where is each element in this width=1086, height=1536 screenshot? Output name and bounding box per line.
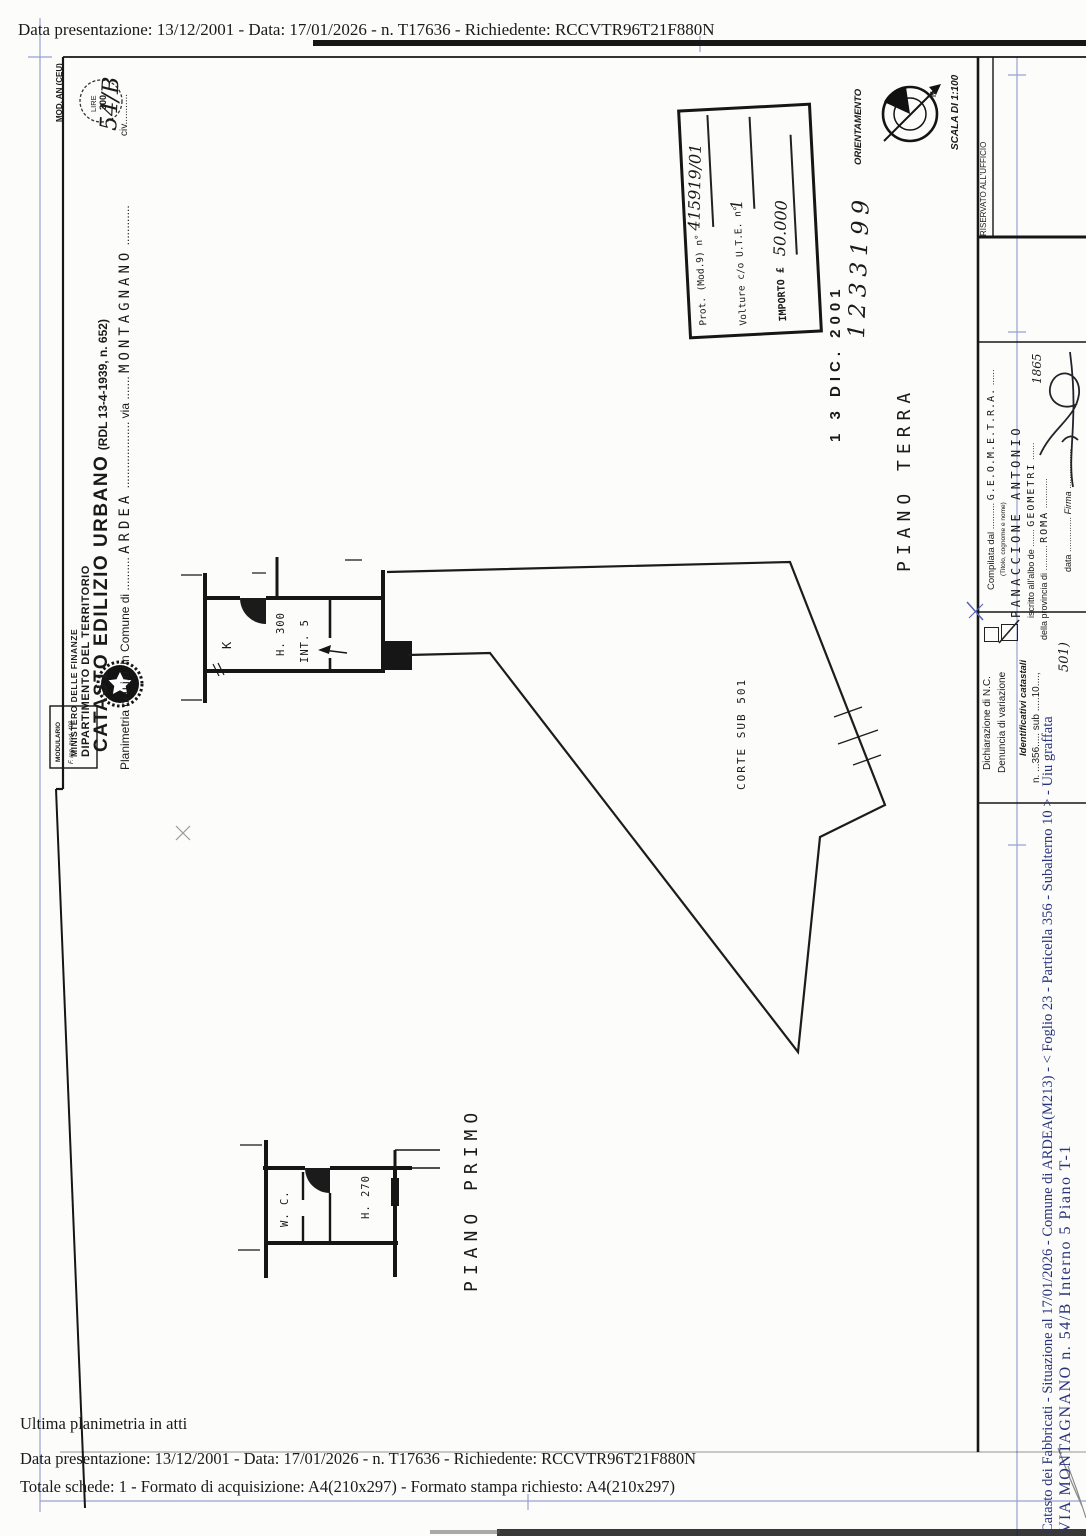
provincia-value: ROMA (1039, 511, 1050, 543)
room-h300-label: H. 300 (276, 612, 287, 656)
orientamento-label: ORIENTAMENTO (854, 89, 864, 165)
entrance-arrow-icon (318, 645, 347, 654)
stamp-rule (790, 135, 798, 255)
importo-label: IMPORTO £ (776, 267, 789, 322)
planimetria-line: Planimetria di u.i.u. in Comune di .....… (118, 205, 132, 770)
firma-label: Firma (1063, 491, 1073, 514)
provincia-label: della provincia di (1039, 573, 1049, 640)
albo-number-handwritten: 1865 (1031, 353, 1043, 384)
via-value: MONTAGNANO (117, 249, 133, 373)
stamp-rule (749, 117, 755, 209)
first-floor-door-swing (305, 1168, 330, 1193)
dots: ....... (1026, 442, 1036, 460)
date-stamp: 1 3 DIC. 2001 (828, 284, 843, 442)
volture-value-handwritten: 1 (729, 199, 746, 210)
stamp-rule (706, 115, 713, 227)
annotation-line1: Catasto dei Fabbricati - Situazione al 1… (1041, 716, 1056, 1533)
dots: .......... (118, 557, 132, 590)
identificativi-label: Identificativi catastali (1019, 660, 1029, 756)
importo-value-handwritten: 50.000 (772, 200, 790, 257)
room-wc-label: W. C. (280, 1190, 291, 1227)
pencil-marks (176, 602, 1086, 1518)
comune-value: ARDEA (117, 492, 133, 554)
scanned-cadastral-document: Data presentazione: 13/12/2001 - Data: 1… (0, 0, 1086, 1536)
corte-sub-501-label: CORTE SUB 501 (736, 678, 747, 790)
int5-label: INT. 5 (300, 619, 311, 663)
scala-label: SCALA DI 1:100 (951, 75, 961, 150)
albo-value: GEOMETRI (1026, 463, 1037, 527)
first-floor-walls (238, 1140, 440, 1278)
footer-ultima-planimetria: Ultima planimetria in atti (20, 1414, 187, 1434)
albo-label: iscritto all'albo de (1026, 549, 1036, 618)
identificativi-extra-handwritten: 501) (1058, 642, 1071, 672)
room-k-label: K (221, 642, 233, 649)
catasto-ref: (RDL 13-4-1939, n. 652) (96, 319, 110, 450)
planimetria-label: Planimetria di u.i.u. in Comune di (118, 594, 132, 770)
header-line: Data presentazione: 13/12/2001 - Data: 1… (18, 20, 715, 40)
prot-value-handwritten: 415919/01 (686, 144, 704, 231)
catasto-title: CATASTO EDILIZIO URBANO (91, 455, 112, 752)
piano-primo-label: PIANO PRIMO (463, 1107, 481, 1292)
data-label: data (1063, 554, 1073, 572)
catasto-title-line: CATASTO EDILIZIO URBANO (RDL 13-4-1939, … (92, 319, 111, 752)
signature-scribble (1040, 352, 1079, 487)
denuncia-variazione-label: Denuncia di variazione (998, 672, 1008, 773)
annotation-line2: VIA MONTAGNANO n. 54/B Interno 5 Piano T… (1058, 1144, 1074, 1533)
dots: ................ (1063, 449, 1073, 489)
compilata-line: Compilata dal .......... G.E.O.M.E.T.R.A… (987, 369, 997, 590)
dots: .......... (1039, 545, 1049, 570)
tecnico-name-value: PANACCIONE ANTONIO (1010, 425, 1022, 618)
dots: ............ (118, 205, 132, 245)
dichiarazione-nc-label: Dichiarazione di N.C. (983, 676, 993, 770)
plan-drawing (0, 0, 1086, 1536)
first-floor-opening-hatch (391, 1178, 399, 1206)
riservato-ufficio-label: RISERVATO ALL'UFFICIO (980, 142, 988, 236)
stair-hatch-block (382, 641, 412, 670)
data-firma-line: data .............. Firma ..............… (1064, 449, 1073, 572)
courtyard-boundary (387, 562, 885, 1052)
checkbox-denuncia-variazione (1001, 624, 1018, 641)
checkbox-dichiarazione-nc (984, 627, 999, 642)
footer-data-presentazione: Data presentazione: 13/12/2001 - Data: 1… (20, 1449, 696, 1469)
dots: .............. (1063, 517, 1073, 552)
dots: .................... (118, 422, 132, 489)
sheet-frame (56, 43, 1086, 1508)
titolo-value: G.E.O.M.E.T.R.A. (986, 388, 997, 500)
ground-floor-door-swing (240, 598, 266, 624)
dots: ............ (1039, 478, 1049, 508)
albo-line: iscritto all'albo de ....... GEOMETRI ..… (1027, 442, 1037, 618)
scan-guide-lines (28, 18, 1086, 1536)
dots: ....... (1026, 529, 1036, 547)
date-stamp-number-handwritten: 1233199 (846, 194, 874, 339)
protocol-stamp-box: Prot. (Mod.9) n° 415919/01 Volture c/o U… (677, 103, 823, 340)
mod-an-label: MOD. AN (CEU) (56, 63, 64, 122)
dots: ....... (118, 376, 132, 399)
modulario-line2: F. reg. mod. 498 (69, 721, 75, 764)
volture-label: Volture c/o U.T.E. n° (733, 205, 749, 325)
north-label: N. (930, 89, 938, 97)
footer-totale-schede: Totale schede: 1 - Formato di acquisizio… (20, 1477, 675, 1497)
titolo-sub-label: (Titolo, cognome e nome) (1001, 502, 1008, 576)
civ-value-handwritten: 54/B (98, 76, 124, 131)
room-h270-label: H. 270 (361, 1175, 372, 1219)
scan-smudge (430, 1529, 1086, 1536)
provincia-line: della provincia di .......... ROMA .....… (1040, 478, 1050, 640)
dots: .......... (986, 503, 997, 529)
dots: ...... (986, 369, 997, 385)
modulario-line1: MODULARIO (56, 722, 63, 762)
compilata-label: Compilata dal (986, 532, 997, 590)
piano-terra-label: PIANO TERRA (896, 387, 914, 572)
prot-label: Prot. (Mod.9) n° (695, 234, 709, 326)
via-label: via (118, 403, 132, 418)
